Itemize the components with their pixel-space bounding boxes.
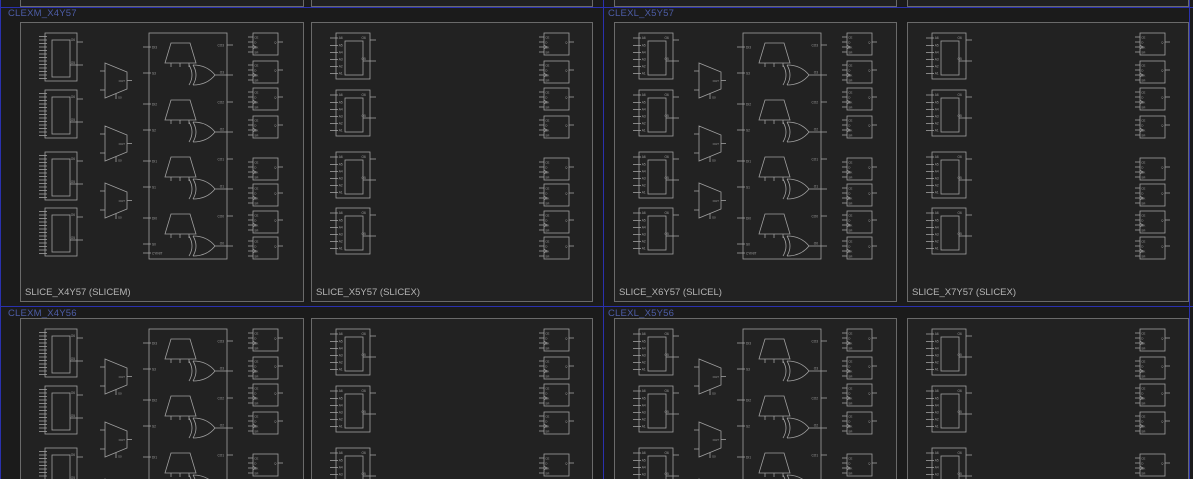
svg-text:CE: CE bbox=[254, 331, 258, 335]
svg-text:A4: A4 bbox=[339, 347, 343, 351]
svg-text:A1: A1 bbox=[642, 247, 646, 251]
svg-text:A6: A6 bbox=[935, 93, 939, 97]
lut-symbol[interactable]: O6O5 bbox=[39, 208, 83, 256]
svg-text:S1: S1 bbox=[746, 185, 750, 189]
svg-text:A6: A6 bbox=[935, 332, 939, 336]
slice-schematic: A6A5A4A3A2A1O6O5A6A5A4A3A2A1O6O5A6A5A4A3… bbox=[312, 23, 592, 301]
ff-symbol[interactable]: CEDCKSRQ bbox=[539, 412, 574, 434]
slice-label: SLICE_X4Y57 (SLICEM) bbox=[25, 287, 131, 298]
mux-symbol[interactable]: OUTS0 bbox=[694, 183, 726, 220]
svg-text:A2: A2 bbox=[642, 184, 646, 188]
svg-text:SR: SR bbox=[1141, 201, 1146, 205]
slice-schematic: A6A5A4A3A2A1O6O5A6A5A4A3A2A1O6O5A6A5A4A3… bbox=[615, 23, 896, 301]
svg-text:D: D bbox=[545, 244, 548, 248]
slice-schematic: A6A5A4A3A2A1O6O5A6A5A4A3A2A1O6O5A6A5A4A3… bbox=[908, 23, 1188, 301]
svg-text:O6: O6 bbox=[71, 213, 75, 217]
svg-text:A5: A5 bbox=[642, 397, 646, 401]
ff-symbol[interactable]: CEDCKSRQ bbox=[539, 211, 574, 233]
svg-text:Q: Q bbox=[1161, 123, 1164, 127]
svg-text:O5: O5 bbox=[665, 114, 669, 118]
svg-text:CE: CE bbox=[254, 35, 258, 39]
ff-symbol[interactable]: CEDCKSRQ bbox=[842, 237, 877, 259]
lut-symbol[interactable]: A6A5A4A3A2A1O6O5 bbox=[926, 386, 972, 432]
svg-text:DI3: DI3 bbox=[746, 45, 751, 49]
svg-text:A6: A6 bbox=[935, 155, 939, 159]
svg-text:O2: O2 bbox=[814, 128, 818, 132]
mux-symbol[interactable]: OUTS0 bbox=[100, 63, 132, 100]
ff-symbol[interactable]: CEDCKSRQ bbox=[248, 237, 283, 259]
ff-symbol[interactable]: CEDCKSRQ bbox=[539, 454, 574, 476]
svg-text:S0: S0 bbox=[118, 96, 122, 100]
svg-text:D: D bbox=[1141, 391, 1144, 395]
svg-text:CE: CE bbox=[254, 239, 258, 243]
svg-text:SR: SR bbox=[1141, 133, 1146, 137]
lut-symbol[interactable]: A6A5A4A3A2A1O6O5 bbox=[926, 208, 972, 254]
slice-box-partial[interactable] bbox=[311, 0, 593, 7]
svg-text:A1: A1 bbox=[935, 191, 939, 195]
svg-text:A6: A6 bbox=[935, 211, 939, 215]
svg-text:O6: O6 bbox=[958, 155, 962, 159]
ff-symbol[interactable]: CEDCKSRQ bbox=[842, 357, 877, 379]
svg-text:D: D bbox=[545, 218, 548, 222]
svg-text:Q: Q bbox=[565, 68, 568, 72]
svg-text:CE: CE bbox=[848, 331, 852, 335]
carry-symbol[interactable]: DI3S3CO3O3DI2S2CO2O2DI1S1CO1O1DI0S0CO0O0… bbox=[143, 33, 233, 259]
svg-text:A3: A3 bbox=[642, 233, 646, 237]
svg-text:A1: A1 bbox=[339, 129, 343, 133]
lut-symbol[interactable]: A6A5A4A3A2A1O6O5 bbox=[926, 329, 972, 375]
svg-text:OUT: OUT bbox=[119, 79, 126, 83]
mux-symbol[interactable]: OUTS0 bbox=[100, 126, 132, 163]
ff-symbol[interactable]: CEDCKSRQ bbox=[248, 329, 283, 351]
ff-symbol[interactable]: CEDCKSRQ bbox=[248, 33, 283, 55]
svg-text:SR: SR bbox=[545, 471, 550, 475]
svg-text:Q: Q bbox=[1161, 165, 1164, 169]
lut-symbol[interactable]: A6A5A4A3A2A1O6O5 bbox=[330, 448, 376, 479]
ff-symbol[interactable]: CEDCKSRQ bbox=[539, 158, 574, 180]
carry-symbol[interactable]: DI3S3CO3O3DI2S2CO2O2DI1S1CO1O1DI0S0CO0O0… bbox=[737, 33, 827, 259]
svg-text:CE: CE bbox=[1141, 118, 1145, 122]
ff-symbol[interactable]: CEDCKSRQ bbox=[1135, 384, 1170, 406]
svg-text:D: D bbox=[545, 419, 548, 423]
ff-symbol[interactable]: CEDCKSRQ bbox=[1135, 412, 1170, 434]
svg-text:A5: A5 bbox=[642, 459, 646, 463]
svg-text:A6: A6 bbox=[339, 332, 343, 336]
svg-text:O0: O0 bbox=[814, 242, 818, 246]
tile-boundary-line bbox=[0, 0, 1, 479]
svg-text:D: D bbox=[254, 123, 257, 127]
svg-text:SR: SR bbox=[545, 201, 550, 205]
lut-symbol[interactable]: A6A5A4A3A2A1O6O5 bbox=[926, 33, 972, 79]
ff-symbol[interactable]: CEDCKSRQ bbox=[248, 357, 283, 379]
mux-symbol[interactable]: OUTS0 bbox=[100, 183, 132, 220]
slice-box[interactable]: A6A5A4A3A2A1O6O5A6A5A4A3A2A1O6O5A6A5A4A3… bbox=[311, 318, 593, 479]
svg-text:DI3: DI3 bbox=[746, 341, 751, 345]
svg-text:O3: O3 bbox=[814, 367, 818, 371]
carry-symbol[interactable]: DI3S3CO3O3DI2S2CO2O2DI1S1CO1O1DI0S0CO0O0… bbox=[143, 329, 233, 479]
svg-text:CE: CE bbox=[848, 414, 852, 418]
mux-symbol[interactable]: OUTS0 bbox=[100, 359, 132, 396]
svg-text:S2: S2 bbox=[746, 128, 750, 132]
svg-text:O5: O5 bbox=[71, 357, 75, 361]
svg-text:CE: CE bbox=[848, 63, 852, 67]
svg-text:A5: A5 bbox=[339, 163, 343, 167]
svg-text:DI1: DI1 bbox=[152, 159, 157, 163]
svg-text:A6: A6 bbox=[339, 211, 343, 215]
ff-symbol[interactable]: CEDCKSRQ bbox=[842, 33, 877, 55]
svg-text:OUT: OUT bbox=[119, 199, 126, 203]
lut-symbol[interactable]: O6O5 bbox=[39, 152, 83, 200]
svg-text:CE: CE bbox=[545, 239, 549, 243]
svg-text:O6: O6 bbox=[362, 211, 366, 215]
svg-text:Q: Q bbox=[274, 244, 277, 248]
svg-text:O6: O6 bbox=[958, 211, 962, 215]
svg-text:CO2: CO2 bbox=[217, 396, 224, 400]
svg-text:A3: A3 bbox=[339, 177, 343, 181]
svg-text:Q: Q bbox=[868, 244, 871, 248]
svg-text:A4: A4 bbox=[339, 226, 343, 230]
lut-symbol[interactable]: A6A5A4A3A2A1O6O5 bbox=[633, 448, 679, 479]
svg-text:CO3: CO3 bbox=[217, 339, 224, 343]
lut-symbol[interactable]: A6A5A4A3A2A1O6O5 bbox=[330, 208, 376, 254]
svg-text:Q: Q bbox=[565, 123, 568, 127]
svg-text:D: D bbox=[848, 461, 851, 465]
svg-text:O6: O6 bbox=[958, 36, 962, 40]
svg-text:CO2: CO2 bbox=[811, 100, 818, 104]
svg-text:CE: CE bbox=[848, 186, 852, 190]
svg-text:O2: O2 bbox=[220, 128, 224, 132]
svg-text:SR: SR bbox=[545, 374, 550, 378]
svg-text:CE: CE bbox=[254, 213, 258, 217]
ff-symbol[interactable]: CEDCKSRQ bbox=[1135, 184, 1170, 206]
svg-text:CE: CE bbox=[254, 386, 258, 390]
slice-box[interactable]: O6O5O6O5O6O5O6O5OUTS0OUTS0OUTS0DI3S3CO3O… bbox=[20, 22, 304, 302]
svg-text:CE: CE bbox=[545, 359, 549, 363]
svg-text:DI2: DI2 bbox=[746, 102, 751, 106]
mux-symbol[interactable]: OUTS0 bbox=[100, 422, 132, 459]
lut-symbol[interactable]: A6A5A4A3A2A1O6O5 bbox=[633, 386, 679, 432]
svg-text:A1: A1 bbox=[339, 368, 343, 372]
slice-box-partial[interactable] bbox=[614, 0, 897, 7]
svg-text:SR: SR bbox=[1141, 50, 1146, 54]
ff-symbol[interactable]: CEDCKSRQ bbox=[248, 211, 283, 233]
svg-text:Q: Q bbox=[868, 40, 871, 44]
svg-text:O5: O5 bbox=[362, 176, 366, 180]
svg-text:CE: CE bbox=[545, 456, 549, 460]
svg-text:S0: S0 bbox=[712, 455, 716, 459]
ff-symbol[interactable]: CEDCKSRQ bbox=[842, 412, 877, 434]
svg-text:CO0: CO0 bbox=[217, 214, 224, 218]
svg-text:S2: S2 bbox=[746, 424, 750, 428]
svg-text:DI1: DI1 bbox=[746, 455, 751, 459]
slice-box[interactable]: A6A5A4A3A2A1O6O5A6A5A4A3A2A1O6O5A6A5A4A3… bbox=[311, 22, 593, 302]
ff-symbol[interactable]: CEDCKSRQ bbox=[539, 116, 574, 138]
lut-symbol[interactable]: A6A5A4A3A2A1O6O5 bbox=[633, 152, 679, 198]
lut-symbol[interactable]: O6O5 bbox=[39, 448, 83, 479]
svg-text:O5: O5 bbox=[362, 472, 366, 476]
svg-text:SR: SR bbox=[848, 201, 853, 205]
slice-schematic: O6O5O6O5O6O5O6O5OUTS0OUTS0OUTS0DI3S3CO3O… bbox=[21, 23, 303, 301]
svg-text:Q: Q bbox=[1161, 461, 1164, 465]
ff-symbol[interactable]: CEDCKSRQ bbox=[842, 158, 877, 180]
svg-text:O6: O6 bbox=[362, 155, 366, 159]
svg-text:Q: Q bbox=[274, 364, 277, 368]
svg-text:A3: A3 bbox=[935, 177, 939, 181]
lut-symbol[interactable]: A6A5A4A3A2A1O6O5 bbox=[330, 329, 376, 375]
slice-box[interactable]: A6A5A4A3A2A1O6O5A6A5A4A3A2A1O6O5A6A5A4A3… bbox=[614, 318, 897, 479]
svg-text:A1: A1 bbox=[642, 191, 646, 195]
lut-symbol[interactable]: A6A5A4A3A2A1O6O5 bbox=[330, 90, 376, 136]
ff-symbol[interactable]: CEDCKSRQ bbox=[1135, 357, 1170, 379]
svg-text:O5: O5 bbox=[665, 57, 669, 61]
svg-text:O3: O3 bbox=[220, 71, 224, 75]
lut-symbol[interactable]: A6A5A4A3A2A1O6O5 bbox=[926, 448, 972, 479]
svg-text:Q: Q bbox=[868, 391, 871, 395]
svg-text:O6: O6 bbox=[665, 211, 669, 215]
svg-text:SR: SR bbox=[848, 471, 853, 475]
svg-text:D: D bbox=[545, 123, 548, 127]
svg-text:DI2: DI2 bbox=[746, 398, 751, 402]
svg-text:D: D bbox=[545, 68, 548, 72]
svg-text:O5: O5 bbox=[958, 176, 962, 180]
svg-text:SR: SR bbox=[1141, 471, 1146, 475]
svg-text:CE: CE bbox=[545, 331, 549, 335]
ff-symbol[interactable]: CEDCKSRQ bbox=[1135, 454, 1170, 476]
svg-text:Q: Q bbox=[274, 40, 277, 44]
mux-symbol[interactable]: OUTS0 bbox=[694, 422, 726, 459]
slice-box[interactable]: A6A5A4A3A2A1O6O5A6A5A4A3A2A1O6O5A6A5A4A3… bbox=[907, 22, 1189, 302]
svg-text:CE: CE bbox=[545, 386, 549, 390]
ff-symbol[interactable]: CEDCKSRQ bbox=[248, 384, 283, 406]
svg-text:O3: O3 bbox=[220, 367, 224, 371]
svg-text:A3: A3 bbox=[642, 473, 646, 477]
svg-text:A2: A2 bbox=[339, 418, 343, 422]
ff-symbol[interactable]: CEDCKSRQ bbox=[1135, 158, 1170, 180]
svg-text:CO2: CO2 bbox=[811, 396, 818, 400]
ff-symbol[interactable]: CEDCKSRQ bbox=[1135, 329, 1170, 351]
mux-symbol[interactable]: OUTS0 bbox=[694, 359, 726, 396]
svg-text:CE: CE bbox=[848, 213, 852, 217]
svg-text:OUT: OUT bbox=[119, 375, 126, 379]
svg-text:A5: A5 bbox=[642, 163, 646, 167]
svg-text:D: D bbox=[545, 391, 548, 395]
ff-symbol[interactable]: CEDCKSRQ bbox=[539, 237, 574, 259]
ff-symbol[interactable]: CEDCKSRQ bbox=[1135, 61, 1170, 83]
lut-symbol[interactable]: O6O5 bbox=[39, 90, 83, 138]
ff-symbol[interactable]: CEDCKSRQ bbox=[539, 384, 574, 406]
svg-text:O6: O6 bbox=[71, 391, 75, 395]
svg-text:A4: A4 bbox=[642, 347, 646, 351]
svg-text:A3: A3 bbox=[339, 354, 343, 358]
svg-text:O5: O5 bbox=[71, 180, 75, 184]
svg-text:A3: A3 bbox=[339, 473, 343, 477]
svg-text:CE: CE bbox=[254, 90, 258, 94]
svg-text:A5: A5 bbox=[642, 44, 646, 48]
svg-text:D: D bbox=[254, 244, 257, 248]
svg-text:D: D bbox=[1141, 364, 1144, 368]
svg-text:S0: S0 bbox=[118, 216, 122, 220]
svg-text:D: D bbox=[545, 40, 548, 44]
lut-symbol[interactable]: O6O5 bbox=[39, 329, 83, 377]
svg-text:CO1: CO1 bbox=[217, 157, 224, 161]
svg-text:D: D bbox=[848, 419, 851, 423]
svg-text:Q: Q bbox=[1161, 191, 1164, 195]
svg-text:A3: A3 bbox=[642, 115, 646, 119]
svg-text:D: D bbox=[254, 40, 257, 44]
svg-text:OUT: OUT bbox=[713, 199, 720, 203]
svg-text:CE: CE bbox=[1141, 386, 1145, 390]
svg-text:A1: A1 bbox=[642, 425, 646, 429]
lut-symbol[interactable]: A6A5A4A3A2A1O6O5 bbox=[330, 152, 376, 198]
ff-symbol[interactable]: CEDCKSRQ bbox=[842, 61, 877, 83]
svg-text:O0: O0 bbox=[220, 242, 224, 246]
svg-text:Q: Q bbox=[868, 461, 871, 465]
lut-symbol[interactable]: A6A5A4A3A2A1O6O5 bbox=[633, 329, 679, 375]
slice-schematic: A6A5A4A3A2A1O6O5A6A5A4A3A2A1O6O5A6A5A4A3… bbox=[312, 319, 592, 479]
lut-symbol[interactable]: O6O5 bbox=[39, 33, 83, 81]
ff-symbol[interactable]: CEDCKSRQ bbox=[1135, 211, 1170, 233]
svg-text:SR: SR bbox=[254, 78, 259, 82]
svg-text:SR: SR bbox=[254, 133, 259, 137]
lut-symbol[interactable]: A6A5A4A3A2A1O6O5 bbox=[330, 33, 376, 79]
svg-text:DI3: DI3 bbox=[152, 45, 157, 49]
svg-text:Q: Q bbox=[565, 364, 568, 368]
ff-symbol[interactable]: CEDCKSRQ bbox=[539, 61, 574, 83]
ff-symbol[interactable]: CEDCKSRQ bbox=[1135, 237, 1170, 259]
svg-text:SR: SR bbox=[1141, 346, 1146, 350]
svg-text:S0: S0 bbox=[712, 392, 716, 396]
svg-text:A1: A1 bbox=[339, 191, 343, 195]
svg-text:Q: Q bbox=[274, 218, 277, 222]
ff-symbol[interactable]: CEDCKSRQ bbox=[842, 329, 877, 351]
mux-symbol[interactable]: OUTS0 bbox=[694, 126, 726, 163]
lut-symbol[interactable]: A6A5A4A3A2A1O6O5 bbox=[633, 33, 679, 79]
slice-label: SLICE_X5Y57 (SLICEX) bbox=[316, 287, 420, 298]
svg-text:D: D bbox=[1141, 95, 1144, 99]
ff-symbol[interactable]: CEDCKSRQ bbox=[248, 184, 283, 206]
ff-symbol[interactable]: CEDCKSRQ bbox=[248, 61, 283, 83]
lut-symbol[interactable]: A6A5A4A3A2A1O6O5 bbox=[926, 152, 972, 198]
svg-text:Q: Q bbox=[274, 95, 277, 99]
lut-symbol[interactable]: A6A5A4A3A2A1O6O5 bbox=[633, 208, 679, 254]
svg-text:O6: O6 bbox=[71, 157, 75, 161]
svg-text:O6: O6 bbox=[362, 332, 366, 336]
svg-text:CE: CE bbox=[848, 35, 852, 39]
ff-symbol[interactable]: CEDCKSRQ bbox=[1135, 88, 1170, 110]
svg-text:A5: A5 bbox=[642, 101, 646, 105]
ff-symbol[interactable]: CEDCKSRQ bbox=[248, 412, 283, 434]
ff-symbol[interactable]: CEDCKSRQ bbox=[842, 116, 877, 138]
ff-symbol[interactable]: CEDCKSRQ bbox=[842, 454, 877, 476]
svg-text:D: D bbox=[1141, 68, 1144, 72]
svg-text:A5: A5 bbox=[339, 44, 343, 48]
slice-box-partial[interactable] bbox=[907, 0, 1189, 7]
svg-text:CE: CE bbox=[545, 213, 549, 217]
lut-symbol[interactable]: A6A5A4A3A2A1O6O5 bbox=[633, 90, 679, 136]
lut-symbol[interactable]: A6A5A4A3A2A1O6O5 bbox=[330, 386, 376, 432]
svg-text:A4: A4 bbox=[642, 226, 646, 230]
svg-text:O5: O5 bbox=[958, 353, 962, 357]
svg-text:A3: A3 bbox=[339, 115, 343, 119]
svg-text:A4: A4 bbox=[642, 170, 646, 174]
svg-text:SR: SR bbox=[1141, 374, 1146, 378]
slice-box[interactable]: A6A5A4A3A2A1O6O5A6A5A4A3A2A1O6O5A6A5A4A3… bbox=[614, 22, 897, 302]
lut-symbol[interactable]: A6A5A4A3A2A1O6O5 bbox=[926, 90, 972, 136]
svg-text:CE: CE bbox=[254, 160, 258, 164]
ff-symbol[interactable]: CEDCKSRQ bbox=[539, 329, 574, 351]
ff-symbol[interactable]: CEDCKSRQ bbox=[248, 454, 283, 476]
svg-text:O6: O6 bbox=[362, 451, 366, 455]
ff-symbol[interactable]: CEDCKSRQ bbox=[248, 158, 283, 180]
svg-text:D: D bbox=[254, 419, 257, 423]
svg-text:CE: CE bbox=[1141, 63, 1145, 67]
ff-symbol[interactable]: CEDCKSRQ bbox=[842, 184, 877, 206]
ff-symbol[interactable]: CEDCKSRQ bbox=[539, 357, 574, 379]
ff-symbol[interactable]: CEDCKSRQ bbox=[539, 88, 574, 110]
svg-text:CE: CE bbox=[848, 456, 852, 460]
carry-symbol[interactable]: DI3S3CO3O3DI2S2CO2O2DI1S1CO1O1DI0S0CO0O0… bbox=[737, 329, 827, 479]
svg-text:CO1: CO1 bbox=[811, 157, 818, 161]
svg-text:O6: O6 bbox=[665, 389, 669, 393]
ff-symbol[interactable]: CEDCKSRQ bbox=[1135, 116, 1170, 138]
svg-text:CE: CE bbox=[1141, 414, 1145, 418]
svg-text:O6: O6 bbox=[362, 36, 366, 40]
ff-symbol[interactable]: CEDCKSRQ bbox=[842, 211, 877, 233]
slice-schematic: A6A5A4A3A2A1O6O5A6A5A4A3A2A1O6O5A6A5A4A3… bbox=[908, 319, 1188, 479]
svg-text:SR: SR bbox=[1141, 105, 1146, 109]
slice-box[interactable]: A6A5A4A3A2A1O6O5A6A5A4A3A2A1O6O5A6A5A4A3… bbox=[907, 318, 1189, 479]
svg-text:A5: A5 bbox=[339, 397, 343, 401]
svg-text:A6: A6 bbox=[642, 93, 646, 97]
ff-symbol[interactable]: CEDCKSRQ bbox=[539, 184, 574, 206]
svg-text:OUT: OUT bbox=[713, 142, 720, 146]
slice-box[interactable]: O6O5O6O5O6O5O6O5OUTS0OUTS0OUTS0DI3S3CO3O… bbox=[20, 318, 304, 479]
svg-text:Q: Q bbox=[868, 364, 871, 368]
svg-text:A5: A5 bbox=[935, 340, 939, 344]
svg-text:D: D bbox=[545, 165, 548, 169]
svg-text:SR: SR bbox=[545, 346, 550, 350]
slice-box-partial[interactable] bbox=[20, 0, 304, 7]
svg-text:D: D bbox=[254, 95, 257, 99]
svg-text:SR: SR bbox=[254, 374, 259, 378]
svg-text:SR: SR bbox=[545, 401, 550, 405]
svg-text:A3: A3 bbox=[339, 58, 343, 62]
ff-symbol[interactable]: CEDCKSRQ bbox=[248, 116, 283, 138]
svg-text:D: D bbox=[254, 391, 257, 395]
svg-text:Q: Q bbox=[274, 123, 277, 127]
svg-text:CE: CE bbox=[545, 90, 549, 94]
svg-text:O6: O6 bbox=[71, 38, 75, 42]
ff-symbol[interactable]: CEDCKSRQ bbox=[1135, 33, 1170, 55]
ff-symbol[interactable]: CEDCKSRQ bbox=[842, 88, 877, 110]
svg-text:Q: Q bbox=[1161, 391, 1164, 395]
lut-symbol[interactable]: O6O5 bbox=[39, 386, 83, 434]
ff-symbol[interactable]: CEDCKSRQ bbox=[842, 384, 877, 406]
svg-text:A5: A5 bbox=[935, 44, 939, 48]
mux-symbol[interactable]: OUTS0 bbox=[694, 63, 726, 100]
svg-text:D: D bbox=[1141, 123, 1144, 127]
svg-text:S1: S1 bbox=[152, 185, 156, 189]
ff-symbol[interactable]: CEDCKSRQ bbox=[539, 33, 574, 55]
svg-text:Q: Q bbox=[1161, 336, 1164, 340]
ff-symbol[interactable]: CEDCKSRQ bbox=[248, 88, 283, 110]
svg-text:CE: CE bbox=[848, 239, 852, 243]
svg-text:S0: S0 bbox=[746, 242, 750, 246]
svg-text:S0: S0 bbox=[152, 242, 156, 246]
svg-text:A2: A2 bbox=[339, 240, 343, 244]
svg-text:O5: O5 bbox=[71, 236, 75, 240]
svg-text:A2: A2 bbox=[935, 122, 939, 126]
